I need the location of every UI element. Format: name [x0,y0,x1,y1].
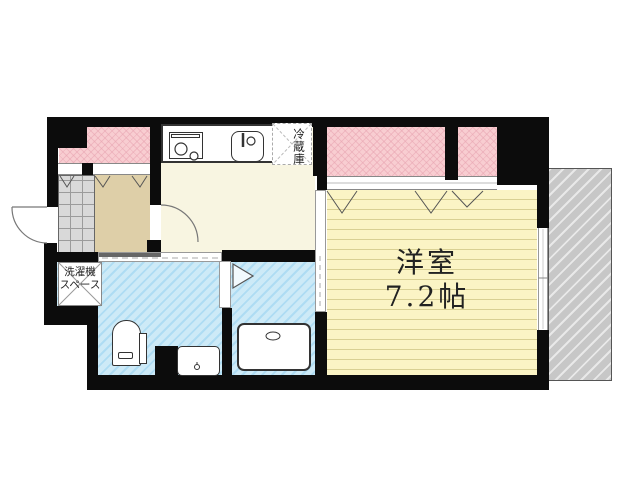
entrance-door-arc-icon [12,207,47,243]
wall-left-upper [47,117,58,207]
adjacent-structure-hatch [548,168,612,381]
toilet-tank-icon [139,333,147,364]
side-window [538,228,548,330]
wall-toilet-stub [155,346,178,376]
bathroom-door-frame [219,261,231,308]
wall-wash-bath-divider [222,308,232,375]
wall-bathroom-top [222,250,315,262]
washbasin-icon [177,346,220,376]
bedroom-label: 洋室 7.2帖 [327,246,527,314]
bedroom-name: 洋室 [327,246,527,280]
corridor-area-step [59,148,87,163]
bedroom-size: 7.2帖 [327,280,527,314]
wall-notch-band [44,306,98,325]
wall-right-lower [537,330,549,375]
wall-bedroom-left-bottom [315,312,327,375]
washer-label-line2: スペース [57,279,103,292]
entrance-window-strip [58,163,150,175]
entrance-tile-floor [58,175,95,253]
bathtub-icon [237,323,311,371]
floorplan-canvas: 洋室 7.2帖 冷蔵庫 洗濯機 スペース [0,0,640,480]
wall-threshold-pillar [82,163,93,175]
washer-label-line1: 洗濯機 [57,266,103,279]
wall-bottom [87,375,549,390]
refrigerator-label: 冷蔵庫 [291,128,307,168]
corridor-area [87,127,150,163]
washer-space-label: 洗濯機 スペース [57,266,103,292]
toilet-icon [112,320,141,366]
balcony-area-2 [458,127,497,177]
wall-washroom-top [44,252,98,262]
hallway-floor [95,175,150,253]
stove-grill-icon [171,134,200,138]
exterior-notch [44,325,87,375]
wall-right-upper [537,185,549,228]
wall-hall-kitchen-upper [150,117,161,205]
wall-balcony-pillar [445,117,458,180]
washroom-sliding-door [98,252,222,262]
balcony-window-strip [327,176,497,190]
bedroom-sliding-door [315,190,326,312]
washroom-sliding-door-panel [99,253,161,257]
sink-icon [231,131,264,162]
wall-fridge-balcony [313,117,327,176]
wall-bedroom-left-top [317,173,327,190]
wall-topright-block [497,117,549,185]
balcony-area [327,127,445,177]
toilet-seat-icon [118,352,133,359]
